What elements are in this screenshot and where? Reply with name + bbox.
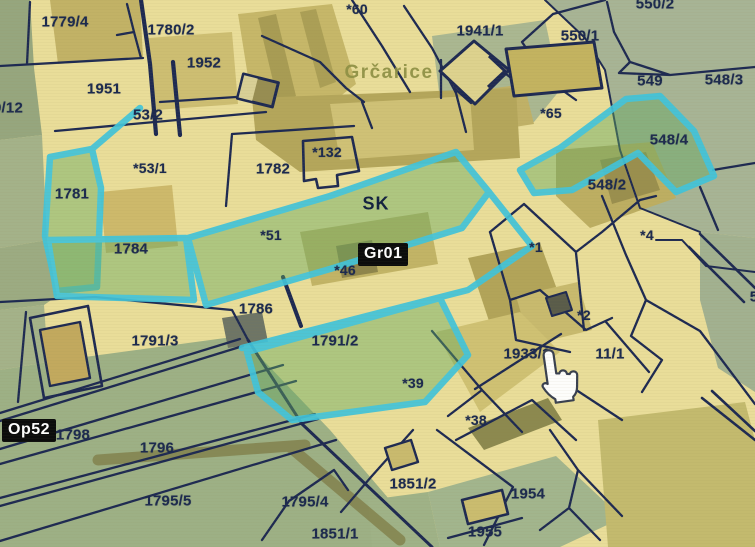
parcel-label-17802: 1780/2 [147,22,194,39]
parcel-label-549: 549 [637,73,663,90]
parcel-label-17954: 1795/4 [281,494,328,511]
map-viewport[interactable]: 1779/41780/2195219519/1253/2*53/11782*13… [0,0,755,547]
parcel-label-4: *4 [640,227,654,243]
parcel-label-51: *51 [260,227,282,243]
parcel-label-5484: 548/4 [650,132,689,149]
parcel-label-1781: 1781 [55,186,89,203]
place-name-label: Grčarice [344,62,433,84]
op-sheet-badge: Op52 [2,419,56,442]
settlement-code-label: SK [362,194,389,215]
parcel-label-5483: 548/3 [705,72,744,89]
parcel-label-1782: 1782 [256,161,290,178]
parcel-label-1784: 1784 [114,241,148,258]
parcel-label-912: 9/12 [0,100,23,117]
parcel-label-1952: 1952 [187,55,221,72]
parcel-label-1951: 1951 [87,81,121,98]
parcel-label-2: *2 [577,307,591,323]
parcel-label-38: *38 [465,412,487,428]
parcel-label-17794: 1779/4 [41,14,88,31]
parcel-label-1955: 1955 [468,524,502,541]
parcel-label-532: 53/2 [133,107,163,124]
parcel-label-1798: 1798 [56,427,90,444]
parcel-label-5502: 550/2 [636,0,675,13]
parcel-label-39: *39 [402,375,424,391]
parcel-label-111: 11/1 [595,346,624,363]
parcel-label-531: *53/1 [133,160,167,176]
parcel-label-5501: 550/1 [561,28,600,45]
parcel-label-17955: 1795/5 [144,493,191,510]
parcel-label-17913: 1791/3 [131,333,178,350]
parcel-label-19411: 1941/1 [456,23,503,40]
parcel-label-5482: 548/2 [588,177,627,194]
parcel-label-17912: 1791/2 [311,333,358,350]
parcel-label-132: *132 [312,144,342,160]
parcel-label-60: *60 [346,1,368,17]
hand-cursor-icon [534,346,584,404]
parcel-label-1786: 1786 [239,301,273,318]
parcel-label-1: *1 [529,239,543,255]
parcel-label-1954: 1954 [511,486,545,503]
parcel-label-65: *65 [540,105,562,121]
parcel-label-18512: 1851/2 [389,476,436,493]
parcel-label-5: 5 [750,289,755,306]
parcel-label-18511: 1851/1 [311,526,358,543]
parcel-label-46: *46 [334,262,356,278]
parcel-label-1796: 1796 [140,440,174,457]
map-sheet-badge: Gr01 [358,243,408,266]
